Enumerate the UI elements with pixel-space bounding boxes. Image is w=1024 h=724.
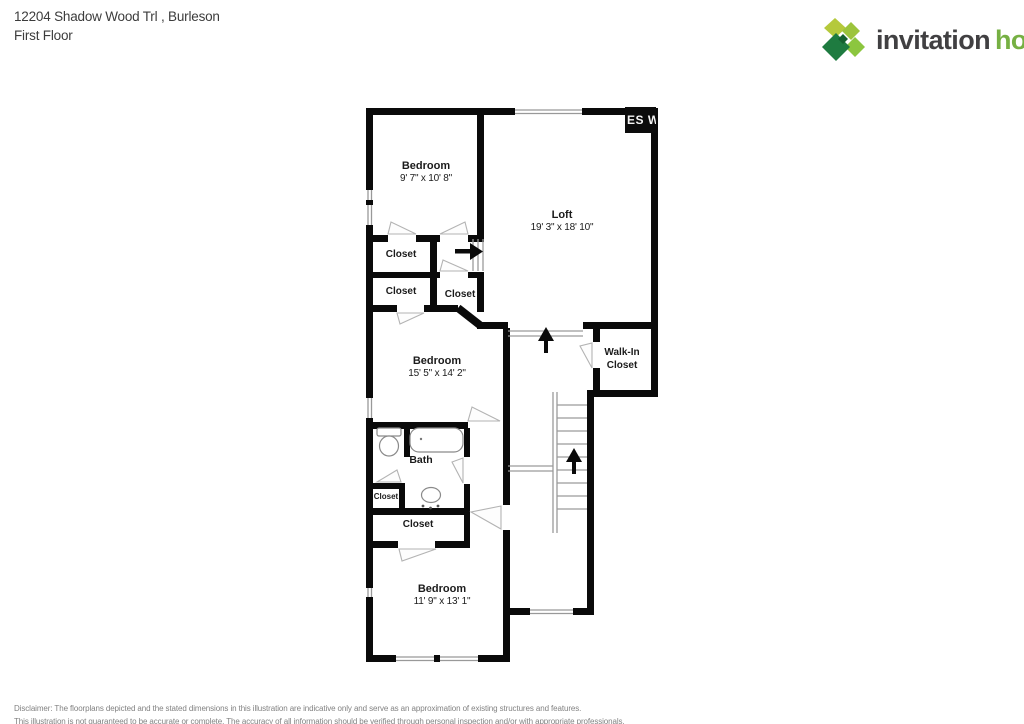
windows	[368, 110, 582, 661]
room-label-closet1: Closet	[386, 249, 417, 260]
room-name: Bedroom	[414, 583, 471, 595]
stairs	[473, 239, 587, 533]
right-arrow-head	[470, 243, 483, 260]
room-label-bedroom2: Bedroom 15' 5" x 14' 2"	[408, 355, 465, 380]
disclaimer-line2: This illustration is not guaranteed to b…	[14, 716, 625, 724]
right-arrow-icon	[455, 249, 471, 254]
disclaimer: Disclaimer: The floorplans depicted and …	[14, 703, 625, 724]
toilet-bowl-icon	[380, 436, 399, 456]
room-dims: 15' 5" x 14' 2"	[408, 368, 465, 380]
sink-icon	[422, 488, 441, 503]
room-name: Bedroom	[400, 160, 452, 172]
room-dims: 19' 3" x 18' 10"	[531, 222, 594, 234]
room-label-loft: Loft 19' 3" x 18' 10"	[531, 209, 594, 234]
room-name: Bedroom	[408, 355, 465, 367]
stairs-up-arrow-head	[566, 448, 582, 462]
room-label-bedroom3: Bedroom 11' 9" x 13' 1"	[414, 583, 471, 608]
disclaimer-line1: Disclaimer: The floorplans depicted and …	[14, 703, 625, 716]
stairs-up-arrow-icon	[572, 460, 576, 474]
room-label-closet4: Closet	[374, 492, 398, 501]
room-name: Loft	[531, 209, 594, 221]
room-label-bedroom1: Bedroom 9' 7" x 10' 8"	[400, 160, 452, 185]
room-label-closet5: Closet	[403, 519, 434, 530]
watermark-remnant: ES W	[625, 107, 656, 133]
room-label-walkin-closet: Walk-In Closet	[604, 346, 639, 372]
room-name: Walk-In	[604, 346, 639, 359]
floorplan-drawing	[0, 0, 1024, 724]
floorplan-page: 12204 Shadow Wood Trl , Burleson First F…	[0, 0, 1024, 724]
room-label-bath: Bath	[409, 454, 432, 466]
toilet-icon	[377, 428, 401, 436]
walls	[366, 108, 658, 662]
room-label-closet3: Closet	[445, 289, 476, 300]
room-name: Closet	[604, 359, 639, 372]
room-dims: 9' 7" x 10' 8"	[400, 173, 452, 185]
bathtub-icon	[410, 428, 463, 452]
room-label-closet2: Closet	[386, 286, 417, 297]
up-arrow-head	[538, 327, 554, 341]
room-dims: 11' 9" x 13' 1"	[414, 596, 471, 608]
up-arrow-icon	[544, 339, 548, 353]
